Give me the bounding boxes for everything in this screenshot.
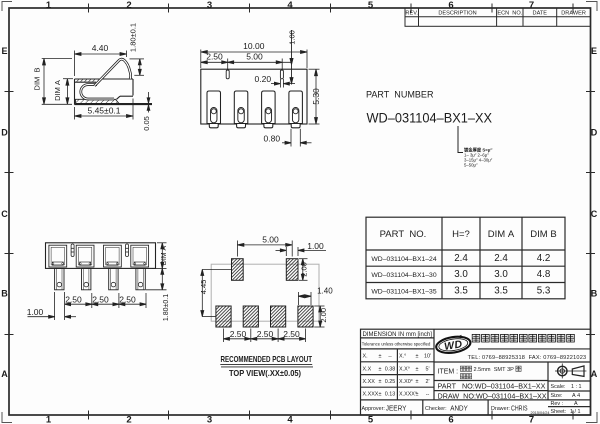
svg-text:5.3: 5.3 [537,285,551,296]
svg-text:E: E [591,46,597,56]
svg-text:5.00: 5.00 [246,51,263,61]
svg-text:4.2: 4.2 [537,253,551,264]
svg-text:WD–031104–BX1–XX: WD–031104–BX1–XX [367,110,493,126]
svg-text:±: ± [379,354,382,360]
svg-text:5': 5' [425,366,429,372]
svg-text:D: D [591,128,598,138]
svg-text:2.4: 2.4 [494,253,508,264]
svg-text:0.80: 0.80 [264,133,281,143]
svg-text:A: A [1,369,8,379]
svg-text:7: 7 [529,415,534,424]
svg-text:5.45±0.1: 5.45±0.1 [87,106,120,116]
svg-text:--: -- [426,392,430,398]
svg-text:5.00: 5.00 [262,234,279,244]
svg-text:3.5: 3.5 [494,285,508,296]
svg-text:±: ± [379,366,382,372]
svg-text:2.50: 2.50 [206,51,223,61]
svg-text:DIMENSION IN mm [inch]: DIMENSION IN mm [inch] [363,332,433,338]
svg-text:DATE: DATE [533,11,548,17]
svg-text:4.8: 4.8 [537,269,551,280]
svg-text:REV.: REV. [405,11,418,17]
svg-text:6: 6 [448,0,453,11]
svg-text:4: 4 [287,415,293,424]
svg-text:CHRIS: CHRIS [511,405,528,412]
svg-text:±: ± [416,366,419,372]
svg-text:1: 1 [46,415,52,424]
svg-text:Size:: Size: [551,393,563,399]
svg-text:4: 4 [287,0,293,11]
svg-text:±: ± [416,354,419,360]
svg-text:E: E [1,46,7,56]
svg-text:X.X: X.X [363,366,372,372]
svg-text:0.05: 0.05 [142,116,151,131]
svg-text:PART NUMBER: PART NUMBER [366,90,434,100]
svg-text:WD–031104–BX1–24: WD–031104–BX1–24 [371,256,436,263]
svg-text:2': 2' [425,379,429,385]
svg-text:±: ± [379,392,382,398]
svg-text:1.80±0.1: 1.80±0.1 [163,294,170,321]
svg-text:3.0: 3.0 [494,269,508,280]
svg-text:ECN NO.: ECN NO. [497,11,522,17]
svg-text:6: 6 [448,415,453,424]
svg-text:1.00: 1.00 [307,241,324,251]
svg-text:2.50: 2.50 [92,294,109,304]
svg-text:5.30: 5.30 [311,88,321,105]
svg-text:DIM B: DIM B [32,68,41,91]
svg-text:1.00: 1.00 [288,30,297,45]
svg-text:3: 3 [207,0,212,11]
svg-text:2.50: 2.50 [257,329,274,339]
svg-text:DIM A: DIM A [53,80,62,101]
svg-text:--: -- [388,354,392,360]
svg-text:0.25: 0.25 [385,379,396,385]
svg-text:10': 10' [424,354,431,360]
svg-text:2.00: 2.00 [319,308,328,323]
svg-text:Drawer:: Drawer: [491,406,510,412]
svg-text:ITEM :: ITEM : [438,368,459,375]
svg-text:X.X0°: X.X0° [399,379,413,385]
svg-text:D: D [1,128,8,138]
svg-text:B: B [591,289,598,299]
svg-text:Tolerance unless otherwise spe: Tolerance unless otherwise specified [362,342,431,348]
svg-text:5–50μ″: 5–50μ″ [464,162,478,167]
svg-text:PART NO.: PART NO. [380,229,427,240]
svg-text:X.°: X.° [399,354,406,360]
svg-text:X.XXX: X.XXX [363,392,379,398]
svg-text:2.5mm SMT 3P: 2.5mm SMT 3P [474,367,515,373]
svg-text:2.00: 2.00 [300,262,309,277]
svg-text:DIM A: DIM A [161,245,168,265]
svg-text:Scale:: Scale: [551,384,566,390]
svg-text:2.4: 2.4 [454,253,468,264]
svg-text:X.XX: X.XX [363,379,376,385]
svg-text:±: ± [379,379,382,385]
svg-text:WD–031104–BX1–35: WD–031104–BX1–35 [371,288,436,295]
svg-text:10.00: 10.00 [243,41,265,51]
svg-text:B: B [1,289,8,299]
svg-text:A: A [591,369,598,379]
svg-text:RECOMMENDED PCB LAYOUT: RECOMMENDED PCB LAYOUT [221,355,313,364]
svg-text:2.50: 2.50 [65,294,82,304]
svg-text:2: 2 [126,415,131,424]
svg-text:4.40: 4.40 [92,43,109,53]
svg-text:A 4: A 4 [572,393,580,399]
svg-text:JEERY: JEERY [386,403,407,412]
svg-text:Sheet:: Sheet: [551,409,567,415]
svg-text:TOP VIEW(.XX±0.05): TOP VIEW(.XX±0.05) [229,369,301,378]
svg-text:2.50: 2.50 [283,329,300,339]
svg-text:DRAWER: DRAWER [561,11,586,17]
svg-text:3.0: 3.0 [454,269,468,280]
svg-text:DIM B: DIM B [530,229,556,240]
svg-text:DRAW NO:WD–031104–BX1–XX: DRAW NO:WD–031104–BX1–XX [438,391,547,400]
svg-text:±: ± [416,392,419,398]
svg-text:ANDY: ANDY [450,403,468,412]
svg-text:Approver:: Approver: [362,406,385,412]
svg-text:1: 1 [46,0,52,11]
svg-text:C: C [1,209,8,219]
svg-text:DESCRIPTION: DESCRIPTION [438,11,476,17]
svg-text:DIM A: DIM A [488,229,515,240]
svg-text:1.80±0.1: 1.80±0.1 [128,23,137,52]
svg-text:5: 5 [368,0,374,11]
svg-text:Rev :: Rev : [551,401,564,407]
svg-text:X.: X. [363,354,368,360]
svg-text:2.50: 2.50 [119,294,136,304]
svg-text:Checker:: Checker: [425,406,447,412]
svg-text:TEL: 0769–88925318 FAX: 0769–: TEL: 0769–88925318 FAX: 0769–89221023 [468,355,587,361]
svg-text:4.45: 4.45 [199,280,208,295]
svg-text:1.40: 1.40 [317,287,333,296]
svg-text:C: C [591,209,598,219]
svg-text:±: ± [416,379,419,385]
svg-text:0.20: 0.20 [255,74,272,84]
svg-text:1.00: 1.00 [27,307,44,317]
svg-text:PART NO:WD–031104–BX1–XX: PART NO:WD–031104–BX1–XX [438,382,546,391]
svg-text:3.5: 3.5 [454,285,468,296]
svg-text:2.50: 2.50 [230,329,247,339]
svg-text:X.X°: X.X° [399,366,410,372]
svg-text:2: 2 [126,0,131,11]
svg-text:WD–031104–BX1–30: WD–031104–BX1–30 [371,272,436,279]
svg-text:H=?: H=? [452,229,470,240]
svg-text:1 / 1: 1 / 1 [570,409,581,415]
svg-text:3: 3 [207,415,212,424]
svg-text:0.38: 0.38 [385,366,396,372]
svg-text:A: A [574,401,578,407]
svg-text:0.13: 0.13 [385,392,396,398]
svg-text:2015/04/24: 2015/04/24 [531,411,550,415]
svg-text:7: 7 [529,0,534,11]
svg-text:5: 5 [368,415,374,424]
svg-text:1 : 1: 1 : 1 [571,384,582,390]
svg-text:X.XXX°: X.XXX° [399,392,417,398]
